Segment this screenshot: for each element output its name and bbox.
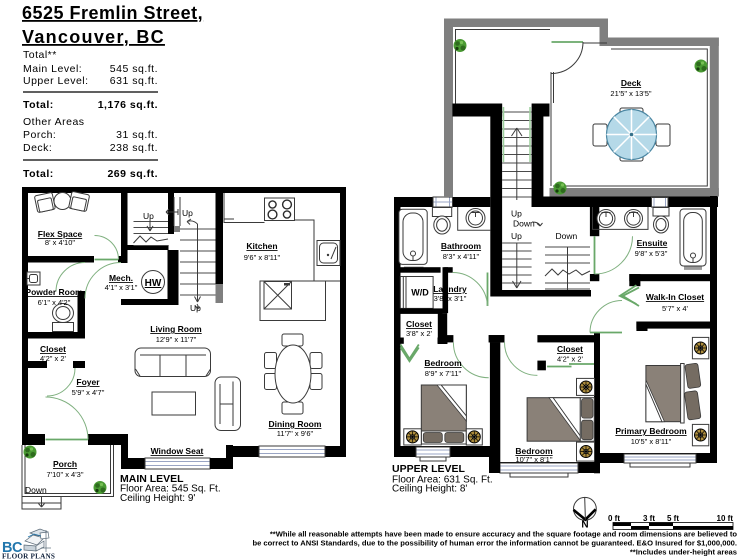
svg-text:Up: Up <box>511 231 522 241</box>
svg-text:631 sq.ft.: 631 sq.ft. <box>110 75 158 87</box>
svg-text:Down: Down <box>25 485 47 495</box>
svg-text:Down: Down <box>556 231 578 241</box>
svg-text:UPPER LEVEL: UPPER LEVEL <box>392 463 466 475</box>
svg-text:12'9" x 11'7": 12'9" x 11'7" <box>156 335 197 344</box>
svg-text:Closet: Closet <box>557 344 583 354</box>
svg-text:6'1" x 4'2": 6'1" x 4'2" <box>38 298 71 307</box>
svg-text:31 sq.ft.: 31 sq.ft. <box>116 129 158 141</box>
svg-text:Closet: Closet <box>40 344 66 354</box>
svg-text:5 ft: 5 ft <box>667 514 679 523</box>
svg-text:Closet: Closet <box>406 319 432 329</box>
svg-text:Ceiling Height: 8': Ceiling Height: 8' <box>392 484 467 495</box>
svg-text:6525 Fremlin Street,: 6525 Fremlin Street, <box>22 3 203 23</box>
svg-text:HW: HW <box>145 278 162 289</box>
svg-text:Total:: Total: <box>23 168 54 180</box>
svg-text:W/D: W/D <box>411 288 429 298</box>
svg-text:21'5" x 13'5": 21'5" x 13'5" <box>610 89 651 98</box>
svg-text:Total**: Total** <box>23 49 57 61</box>
svg-text:Up: Up <box>143 211 154 221</box>
svg-text:Upper Level:: Upper Level: <box>23 75 89 87</box>
svg-text:1,176 sq.ft.: 1,176 sq.ft. <box>98 99 158 111</box>
svg-text:Bedroom: Bedroom <box>424 358 462 368</box>
svg-text:Primary Bedroom: Primary Bedroom <box>615 426 687 436</box>
svg-text:7'10" x 4'3": 7'10" x 4'3" <box>47 470 84 479</box>
svg-text:Mech.: Mech. <box>109 273 133 283</box>
svg-text:Ceiling Height: 9': Ceiling Height: 9' <box>120 493 195 504</box>
svg-text:5'9" x 4'7": 5'9" x 4'7" <box>72 388 105 397</box>
svg-text:8'3" x 4'11": 8'3" x 4'11" <box>443 252 480 261</box>
svg-text:Main Level:: Main Level: <box>23 63 82 75</box>
svg-text:Down: Down <box>513 219 535 229</box>
svg-text:10'5" x 8'11": 10'5" x 8'11" <box>631 437 672 446</box>
svg-text:Dining Room: Dining Room <box>269 419 322 429</box>
svg-text:8' x 4'10": 8' x 4'10" <box>45 238 75 247</box>
svg-text:Kitchen: Kitchen <box>246 241 277 251</box>
svg-text:0 ft: 0 ft <box>608 514 620 523</box>
svg-text:Window Seat: Window Seat <box>151 446 204 456</box>
svg-text:**While all reasonable attempt: **While all reasonable attempts have bee… <box>270 530 738 539</box>
svg-text:Other Areas: Other Areas <box>23 116 85 128</box>
svg-text:4'2" x 2': 4'2" x 2' <box>557 355 584 364</box>
svg-text:9'8" x 5'3": 9'8" x 5'3" <box>635 249 668 258</box>
svg-text:Ensuite: Ensuite <box>637 238 668 248</box>
svg-text:238 sq.ft.: 238 sq.ft. <box>110 142 158 154</box>
svg-text:Up: Up <box>182 208 193 218</box>
svg-text:Foyer: Foyer <box>76 377 100 387</box>
svg-text:FLOOR PLANS: FLOOR PLANS <box>2 553 55 560</box>
svg-text:9'6" x 8'11": 9'6" x 8'11" <box>244 253 281 262</box>
svg-text:11'7" x 9'6": 11'7" x 9'6" <box>277 429 314 438</box>
svg-text:Deck: Deck <box>621 78 642 88</box>
svg-text:269 sq.ft.: 269 sq.ft. <box>107 168 158 180</box>
svg-text:10'7" x 8'1": 10'7" x 8'1" <box>516 455 553 464</box>
svg-text:3'8" x 3'1": 3'8" x 3'1" <box>434 294 467 303</box>
svg-text:**Includes under-height areas: **Includes under-height areas <box>630 548 737 557</box>
svg-text:Up: Up <box>511 209 522 219</box>
svg-text:Walk-In Closet: Walk-In Closet <box>646 292 704 302</box>
svg-text:be correct to ANSI Standards,: be correct to ANSI Standards, due to the… <box>252 539 737 548</box>
svg-text:Total:: Total: <box>23 99 54 111</box>
svg-text:Porch:: Porch: <box>23 129 56 141</box>
svg-text:4'2" x 2': 4'2" x 2' <box>40 354 67 363</box>
svg-text:10 ft: 10 ft <box>717 514 734 523</box>
svg-text:Vancouver, BC: Vancouver, BC <box>22 27 165 47</box>
svg-text:Bathroom: Bathroom <box>441 241 482 251</box>
svg-text:Powder Room: Powder Room <box>25 287 83 297</box>
svg-text:3 ft: 3 ft <box>643 514 655 523</box>
svg-text:Laundry: Laundry <box>433 284 467 294</box>
svg-text:5'7" x 4': 5'7" x 4' <box>662 304 689 313</box>
svg-text:4'1" x 3'1": 4'1" x 3'1" <box>105 283 138 292</box>
svg-text:Deck:: Deck: <box>23 142 52 154</box>
svg-text:Porch: Porch <box>53 459 77 469</box>
svg-text:3'8" x 2': 3'8" x 2' <box>406 329 433 338</box>
svg-text:545 sq.ft.: 545 sq.ft. <box>110 63 158 75</box>
svg-text:Living Room: Living Room <box>150 324 202 334</box>
svg-text:8'9" x 7'11": 8'9" x 7'11" <box>425 369 462 378</box>
